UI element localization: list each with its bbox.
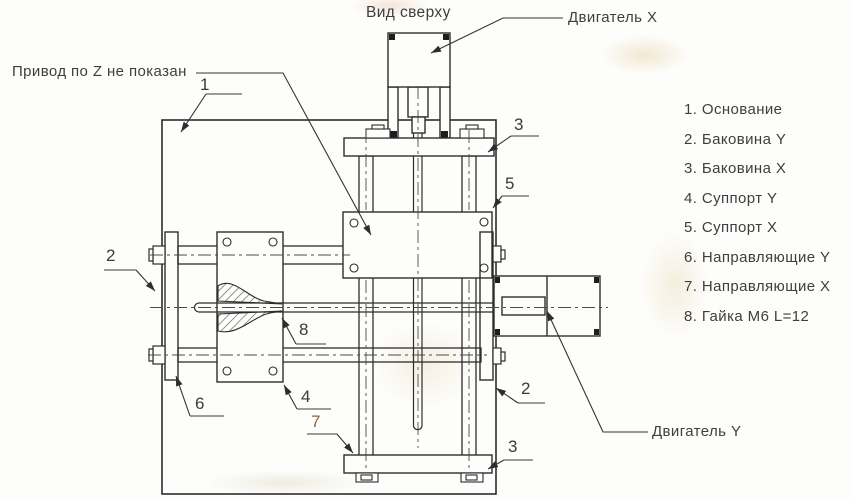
callout-guides-y: 6	[195, 394, 205, 414]
bottom-bar-bolts	[356, 473, 483, 482]
parts-list-item: 2. Баковина Y	[684, 131, 830, 161]
parts-list: 1. Основание 2. Баковина Y 3. Баковина X…	[684, 101, 830, 337]
callout-support-y: 4	[301, 387, 311, 407]
callout-side-y-left: 2	[106, 246, 116, 266]
callout-nut-m6: 8	[299, 320, 309, 340]
x-guide-rails	[359, 156, 476, 456]
callout-side-x-bottom: 3	[508, 437, 518, 457]
parts-list-item: 8. Гайка М6 L=12	[684, 308, 830, 338]
callout-side-y-right: 2	[521, 379, 531, 399]
view-title: Вид сверху	[366, 4, 451, 22]
callout-side-x-top: 3	[514, 115, 524, 135]
callout-support-x: 5	[505, 174, 515, 194]
cnc-top-view-drawing: Вид сверху Двигатель X Привод по Z не по…	[0, 0, 850, 500]
callout-guides-x: 7	[311, 412, 321, 432]
motor-y-assembly	[494, 276, 600, 336]
motor-y-label: Двигатель Y	[652, 423, 741, 440]
parts-list-item: 7. Направляющие X	[684, 278, 830, 308]
base-plate	[162, 120, 496, 494]
parts-list-item: 5. Суппорт X	[684, 219, 830, 249]
parts-list-item: 6. Направляющие Y	[684, 249, 830, 279]
motor-x-label: Двигатель X	[568, 9, 657, 26]
z-drive-note: Привод по Z не показан	[12, 63, 187, 80]
parts-list-item: 4. Суппорт Y	[684, 190, 830, 220]
y-carriage	[217, 232, 283, 382]
callout-base: 1	[200, 75, 210, 95]
parts-list-item: 3. Баковина X	[684, 160, 830, 190]
x-carriage	[343, 212, 492, 278]
parts-list-item: 1. Основание	[684, 101, 830, 131]
